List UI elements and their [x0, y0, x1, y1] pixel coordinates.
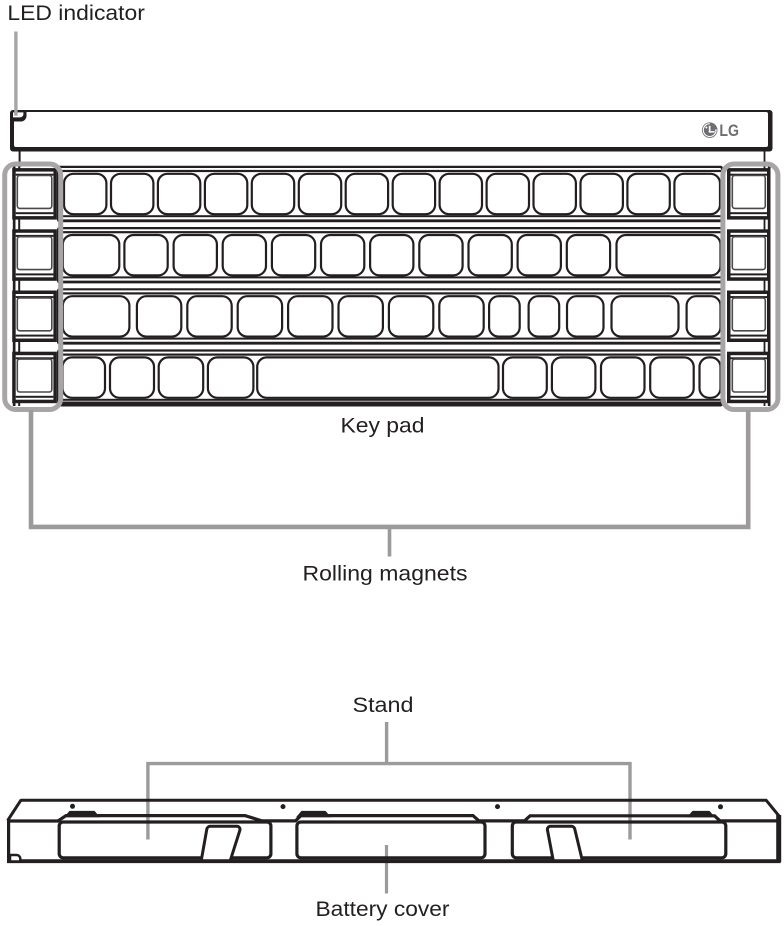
svg-text:LG: LG: [719, 122, 739, 140]
svg-text:Rolling magnets: Rolling magnets: [303, 560, 468, 585]
svg-text:Stand: Stand: [353, 692, 414, 717]
svg-text:Battery cover: Battery cover: [316, 896, 450, 921]
svg-text:LED indicator: LED indicator: [7, 0, 145, 25]
svg-text:Key pad: Key pad: [341, 412, 425, 437]
